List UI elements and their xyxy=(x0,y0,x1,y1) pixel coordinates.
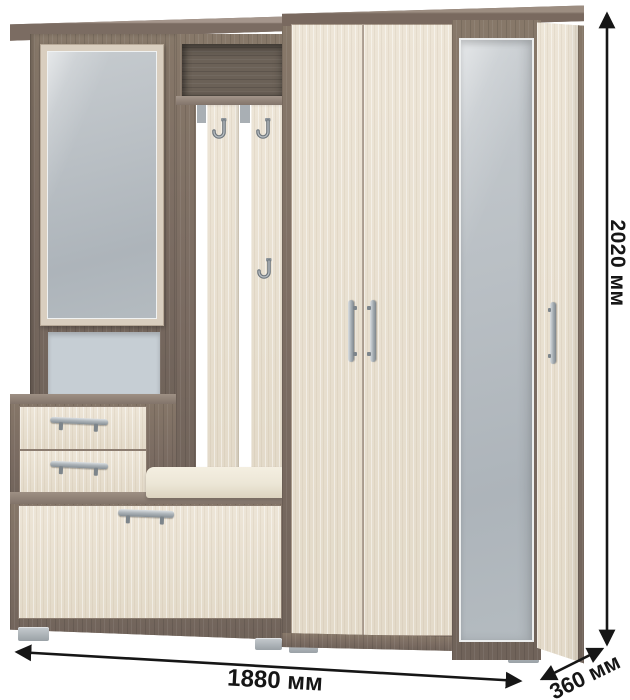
product-image: 2020 мм 1880 мм 360 мм xyxy=(0,0,630,700)
dimension-arrows xyxy=(0,0,630,700)
height-dimension-label: 2020 мм xyxy=(605,199,629,327)
